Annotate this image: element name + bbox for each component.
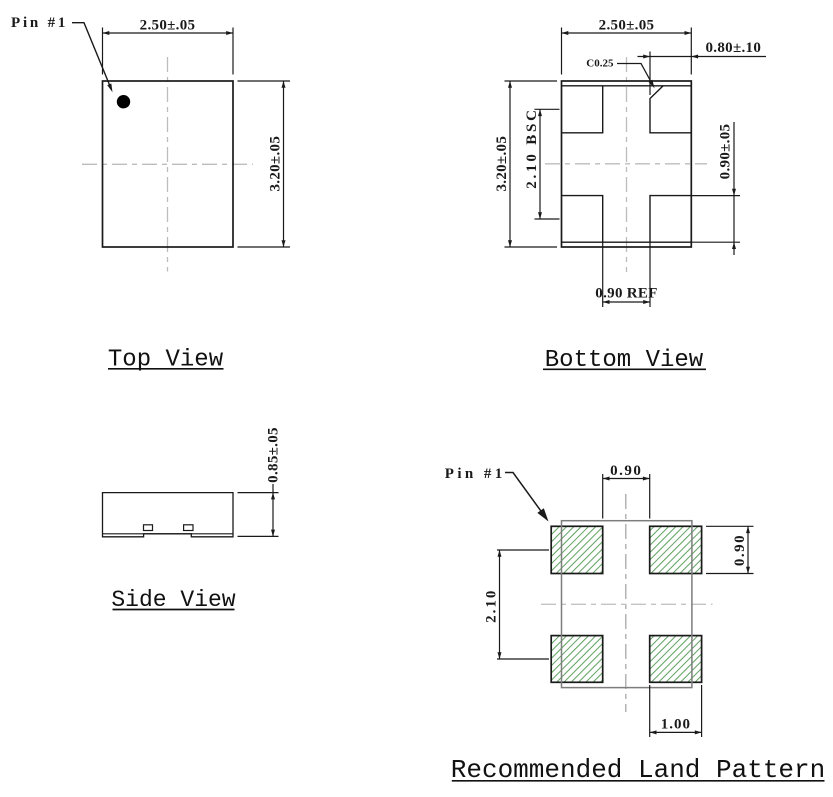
svg-text:0.90: 0.90 xyxy=(610,463,642,479)
svg-text:0.90: 0.90 xyxy=(732,534,748,566)
svg-text:2.50±.05: 2.50±.05 xyxy=(140,18,196,34)
svg-text:0.90±.05: 0.90±.05 xyxy=(718,124,734,180)
svg-text:2.10 BSC: 2.10 BSC xyxy=(524,107,540,189)
svg-text:0.85±.05: 0.85±.05 xyxy=(266,427,282,483)
svg-text:3.20±.05: 3.20±.05 xyxy=(494,136,510,192)
svg-text:C0.25: C0.25 xyxy=(586,58,614,70)
svg-text:1.00: 1.00 xyxy=(661,717,691,733)
svg-text:0.80±.10: 0.80±.10 xyxy=(706,40,762,56)
svg-text:3.20±.05: 3.20±.05 xyxy=(268,136,284,192)
svg-text:Pin #1: Pin #1 xyxy=(11,15,68,31)
svg-text:0.90 REF: 0.90 REF xyxy=(595,286,657,302)
svg-text:Pin #1: Pin #1 xyxy=(445,466,506,482)
svg-text:2.50±.05: 2.50±.05 xyxy=(599,18,655,34)
svg-text:2.10: 2.10 xyxy=(484,589,500,623)
